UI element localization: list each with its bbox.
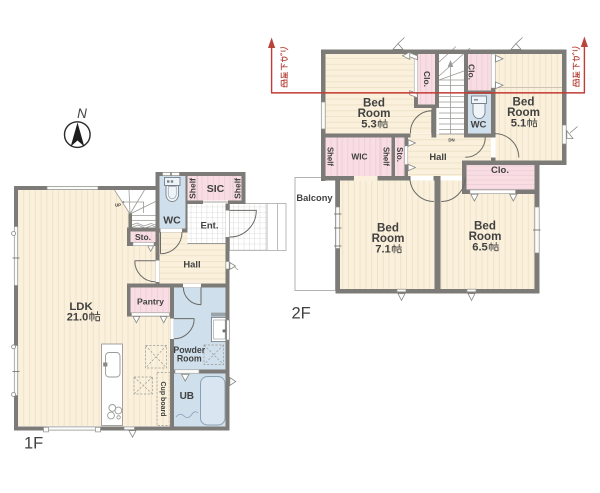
svg-text:Ent.: Ent. (201, 221, 219, 232)
svg-text:SIC: SIC (207, 183, 225, 195)
svg-text:21.0: 21.0 (67, 312, 88, 324)
svg-text:WC: WC (163, 215, 181, 227)
svg-text:Clo.: Clo. (422, 71, 432, 87)
svg-text:Hall: Hall (429, 151, 446, 162)
svg-text:5.1: 5.1 (511, 118, 527, 130)
svg-text:DN: DN (448, 138, 454, 143)
svg-text:Shelf: Shelf (381, 147, 390, 166)
svg-text:Sto.: Sto. (395, 147, 404, 162)
svg-text:Clo.: Clo. (467, 64, 477, 80)
svg-text:Cup board: Cup board (159, 382, 166, 417)
svg-text:Sto.: Sto. (135, 232, 151, 242)
svg-text:WC: WC (471, 120, 487, 131)
svg-text:Balcony: Balcony (296, 193, 333, 203)
svg-text:Room: Room (177, 354, 202, 364)
svg-text:5.3: 5.3 (361, 119, 377, 131)
svg-text:Clo.: Clo. (491, 165, 509, 176)
svg-text:Hall: Hall (183, 258, 200, 269)
svg-text:7.1: 7.1 (375, 244, 391, 256)
svg-text:N: N (77, 106, 87, 121)
svg-text:1F: 1F (24, 435, 43, 453)
svg-text:UP: UP (115, 203, 121, 208)
svg-text:WIC: WIC (351, 152, 367, 162)
svg-text:Pantry: Pantry (137, 297, 164, 307)
svg-text:2F: 2F (292, 305, 311, 323)
svg-text:6.5: 6.5 (472, 242, 488, 254)
svg-text:Shelf: Shelf (233, 178, 243, 199)
svg-text:Shelf: Shelf (188, 178, 198, 199)
svg-text:UB: UB (180, 391, 194, 402)
svg-text:Shelf: Shelf (325, 147, 334, 166)
